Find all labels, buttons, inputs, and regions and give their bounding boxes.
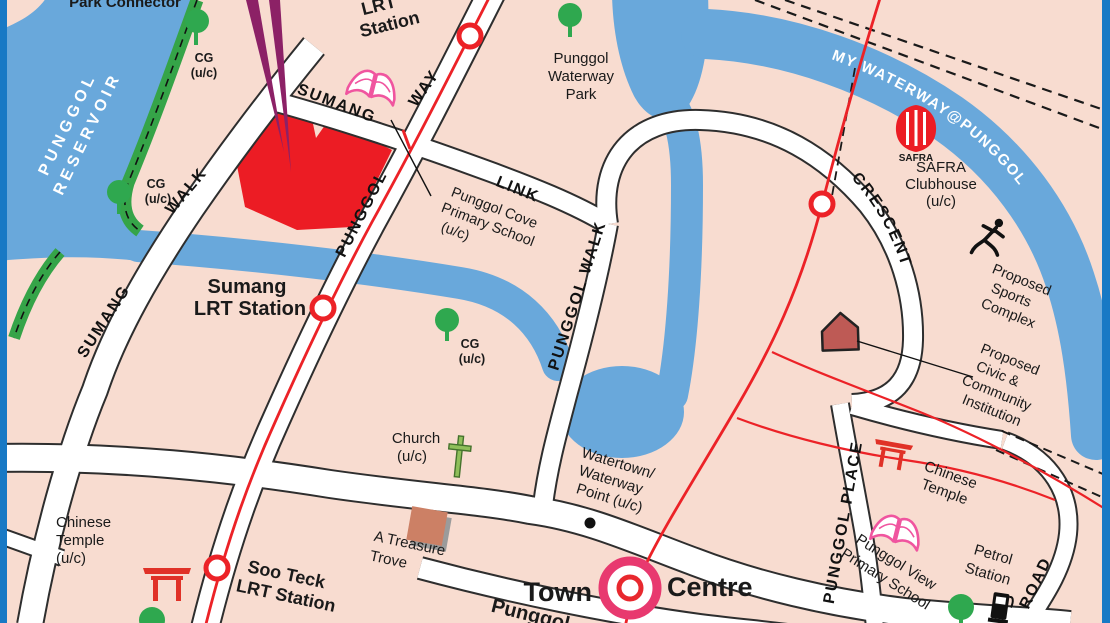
poi-dot	[585, 518, 596, 529]
cg-label: CG (u/c)	[459, 337, 485, 366]
interchange-ring-punggol	[603, 561, 657, 615]
svg-text:(u/c): (u/c)	[926, 193, 956, 210]
svg-text:SAFRA: SAFRA	[916, 159, 966, 176]
svg-text:CG: CG	[461, 337, 480, 351]
house-icon	[821, 312, 858, 350]
cg-label: CG (u/c)	[191, 51, 217, 80]
svg-text:Church: Church	[392, 430, 440, 447]
svg-text:Punggol: Punggol	[553, 50, 608, 67]
map-canvas: Park Connector PUNGGOL RESERVOIR CG (u/c…	[0, 0, 1110, 623]
svg-text:Town: Town	[524, 577, 592, 607]
waterway-east-arm	[664, 94, 687, 395]
station-ring-sumang	[312, 297, 334, 319]
petrol-station-label: Petrol Station	[963, 540, 1018, 588]
map-frame-right	[1102, 0, 1110, 623]
svg-text:(u/c): (u/c)	[459, 352, 485, 366]
svg-text:Sumang: Sumang	[208, 276, 287, 298]
svg-text:CG: CG	[147, 177, 166, 191]
svg-text:(u/c): (u/c)	[397, 448, 427, 465]
svg-text:Clubhouse: Clubhouse	[905, 176, 977, 193]
chinese-temple-uc-label: Chinese Temple (u/c)	[56, 514, 111, 567]
svg-text:LRT Station: LRT Station	[194, 298, 306, 320]
svg-text:Park: Park	[566, 86, 597, 103]
svg-text:Centre: Centre	[667, 572, 753, 602]
punggol-map: Park Connector PUNGGOL RESERVOIR CG (u/c…	[0, 0, 1110, 623]
safra-label: SAFRA Clubhouse (u/c)	[905, 159, 977, 210]
map-frame-left	[0, 0, 7, 623]
svg-text:Trove: Trove	[368, 547, 409, 571]
church-cross-icon	[446, 435, 472, 478]
svg-text:(u/c): (u/c)	[191, 66, 217, 80]
station-ring-soo-teck	[206, 557, 228, 579]
church-label: Church (u/c)	[392, 430, 440, 465]
park-connector-strip	[14, 252, 60, 338]
lrt-branch	[737, 418, 1055, 500]
civic-institution-label: Proposed Civic & Community Institution	[953, 339, 1048, 432]
nibong-station-label: Nibong LRT Station	[341, 0, 421, 43]
runner-icon	[972, 216, 1006, 257]
chinese-temple-label: Chinese Temple	[916, 458, 980, 510]
svg-text:Temple: Temple	[56, 532, 104, 549]
svg-text:(u/c): (u/c)	[56, 550, 86, 567]
station-ring-crescent	[811, 193, 833, 215]
park-connector-label: Park Connector	[69, 0, 181, 11]
sumang-station-label: Sumang LRT Station	[194, 276, 306, 320]
svg-text:Chinese: Chinese	[56, 514, 111, 531]
torii-icon	[143, 568, 191, 601]
station-ring-nibong	[459, 25, 481, 47]
waterway-park-label: Punggol Waterway Park	[548, 50, 615, 103]
svg-text:CG: CG	[195, 51, 214, 65]
svg-text:Waterway: Waterway	[548, 68, 615, 85]
soo-teck-station-label: Soo Teck LRT Station	[235, 555, 342, 616]
school-book-icon	[346, 67, 399, 105]
